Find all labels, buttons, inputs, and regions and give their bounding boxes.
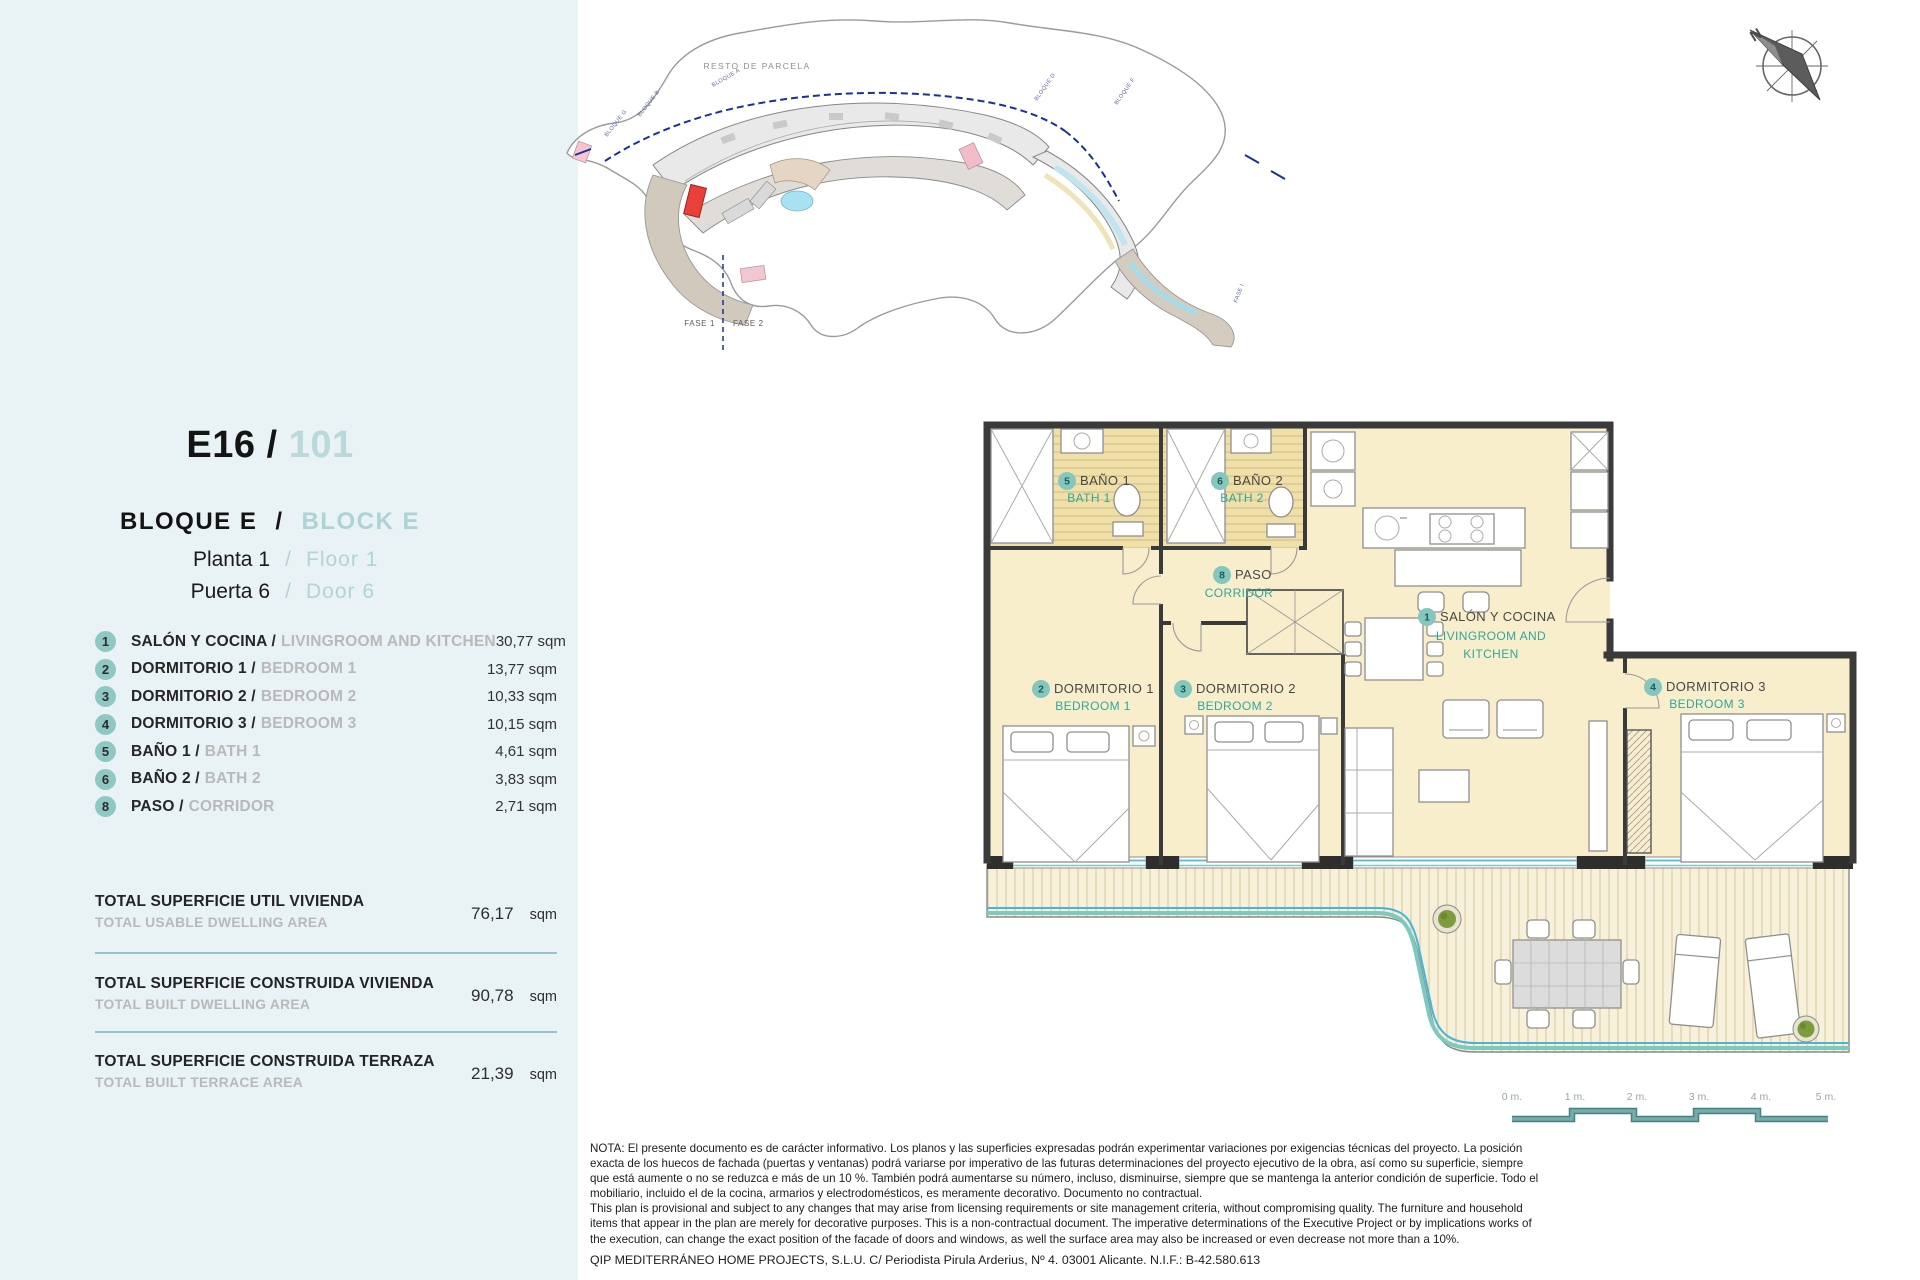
plant-icon: [1793, 1016, 1819, 1042]
unit-code: E16 /: [186, 424, 277, 466]
room-row-bath1: 5 BAÑO 1 /BATH 1 4,61 sqm: [95, 738, 557, 766]
room-name: DORMITORIO 3 /BEDROOM 3: [131, 715, 356, 733]
block-separator: /: [275, 508, 283, 535]
fase-1-label: FASE 1: [684, 319, 715, 328]
block-row: BLOQUE E/BLOCK E: [0, 508, 540, 536]
company-line: QIP MEDITERRÁNEO HOME PROJECTS, S.L.U. C…: [590, 1253, 1540, 1267]
unit-number: 101: [289, 424, 354, 466]
room-number-badge: 3: [95, 686, 116, 707]
svg-text:4: 4: [1650, 682, 1656, 694]
svg-text:DORMITORIO 2: DORMITORIO 2: [1196, 681, 1296, 696]
room-name: DORMITORIO 2 /BEDROOM 2: [131, 688, 356, 706]
floor-label-es: Planta 1: [0, 548, 270, 572]
room-area: 10,15 sqm: [487, 716, 557, 733]
room-area: 2,71 sqm: [495, 798, 557, 815]
scale-tick-5: 5 m.: [1816, 1091, 1836, 1103]
total-terrace-area: TOTAL SUPERFICIE CONSTRUIDA TERRAZA TOTA…: [95, 1053, 557, 1090]
svg-text:DORMITORIO 1: DORMITORIO 1: [1054, 681, 1154, 696]
scale-tick-2: 2 m.: [1627, 1091, 1647, 1103]
note-english: This plan is provisional and subject to …: [590, 1201, 1540, 1246]
room-row-corridor: 8 PASO /CORRIDOR 2,71 sqm: [95, 793, 557, 821]
total-value: 21,39sqm: [471, 1064, 557, 1084]
note-spanish: NOTA: El presente documento es de caráct…: [590, 1141, 1540, 1201]
scale-tick-3: 3 m.: [1689, 1091, 1709, 1103]
scale-bar: 0 m. 1 m. 2 m. 3 m. 4 m. 5 m.: [1498, 1086, 1843, 1130]
bedroom2-furniture: [1185, 716, 1337, 862]
svg-text:CORRIDOR: CORRIDOR: [1205, 586, 1274, 600]
door-row: Puerta 6 / Door 6: [0, 580, 540, 604]
site-plan: RESTO DE PARCELA: [545, 5, 1300, 350]
svg-text:PASO: PASO: [1235, 567, 1272, 582]
room-area-list: 1 SALÓN Y COCINA /LIVINGROOM AND KITCHEN…: [95, 628, 557, 821]
svg-text:1: 1: [1424, 612, 1430, 624]
room-row-bedroom2: 3 DORMITORIO 2 /BEDROOM 2 10,33 sqm: [95, 683, 557, 711]
resto-de-parcela-label: RESTO DE PARCELA: [703, 61, 810, 71]
room-name: DORMITORIO 1 /BEDROOM 1: [131, 660, 356, 678]
total-usable-area: TOTAL SUPERFICIE UTIL VIVIENDA TOTAL USA…: [95, 893, 557, 930]
scale-tick-0: 0 m.: [1502, 1091, 1522, 1103]
svg-text:BATH 2: BATH 2: [1220, 491, 1264, 505]
total-value: 76,17sqm: [471, 904, 557, 924]
room-area: 4,61 sqm: [495, 743, 557, 760]
door-label-es: Puerta 6: [0, 580, 270, 604]
floor-row: Planta 1 / Floor 1: [0, 548, 540, 572]
svg-text:BATH 1: BATH 1: [1067, 491, 1111, 505]
floor-separator: /: [270, 548, 306, 572]
door-label-en: Door 6: [306, 580, 476, 604]
svg-text:5: 5: [1064, 476, 1070, 488]
svg-text:KITCHEN: KITCHEN: [1463, 647, 1518, 661]
room-name: PASO /CORRIDOR: [131, 798, 275, 816]
svg-text:BEDROOM 3: BEDROOM 3: [1669, 697, 1745, 711]
room-area: 3,83 sqm: [495, 771, 557, 788]
total-value: 90,78sqm: [471, 986, 557, 1006]
room-number-badge: 4: [95, 714, 116, 735]
compass-icon: N: [1720, 12, 1840, 112]
room-row-bedroom1: 2 DORMITORIO 1 /BEDROOM 1 13,77 sqm: [95, 656, 557, 684]
svg-text:BAÑO 2: BAÑO 2: [1233, 473, 1283, 488]
total-built-area: TOTAL SUPERFICIE CONSTRUIDA VIVIENDA TOT…: [95, 975, 557, 1012]
svg-text:8: 8: [1219, 570, 1225, 582]
terrace: [987, 865, 1849, 1052]
block-label-en: BLOCK E: [302, 508, 421, 535]
unit-title: E16 / 101: [0, 424, 540, 467]
svg-text:3: 3: [1180, 684, 1186, 696]
fase-2-label: FASE 2: [733, 319, 764, 328]
room-number-badge: 2: [95, 659, 116, 680]
svg-text:SALÓN Y COCINA: SALÓN Y COCINA: [1440, 609, 1556, 624]
plan-sheet: E16 / 101 BLOQUE E/BLOCK E Planta 1 / Fl…: [0, 0, 1920, 1280]
info-panel: E16 / 101 BLOQUE E/BLOCK E Planta 1 / Fl…: [0, 0, 578, 1280]
fase-i-label: FASE I: [1233, 283, 1245, 304]
divider: [95, 1031, 557, 1033]
svg-text:BEDROOM 2: BEDROOM 2: [1197, 699, 1273, 713]
room-name: BAÑO 1 /BATH 1: [131, 743, 261, 761]
legal-note: NOTA: El presente documento es de caráct…: [590, 1141, 1540, 1267]
room-area: 13,77 sqm: [487, 661, 557, 678]
scale-tick-4: 4 m.: [1751, 1091, 1771, 1103]
bedroom3-furniture: [1681, 714, 1845, 862]
scale-tick-1: 1 m.: [1565, 1091, 1585, 1103]
door-separator: /: [270, 580, 306, 604]
block-label-es: BLOQUE E: [120, 508, 257, 535]
floor-label-en: Floor 1: [306, 548, 476, 572]
svg-text:BEDROOM 1: BEDROOM 1: [1055, 699, 1131, 713]
svg-text:2: 2: [1038, 684, 1044, 696]
svg-text:BAÑO 1: BAÑO 1: [1080, 473, 1130, 488]
room-row-bedroom3: 4 DORMITORIO 3 /BEDROOM 3 10,15 sqm: [95, 711, 557, 739]
room-area: 30,77 sqm: [496, 633, 566, 650]
plant-icon: [1433, 905, 1461, 933]
room-row-salon: 1 SALÓN Y COCINA /LIVINGROOM AND KITCHEN…: [95, 628, 557, 656]
room-area: 10,33 sqm: [487, 688, 557, 705]
room-name: SALÓN Y COCINA /LIVINGROOM AND KITCHEN: [131, 633, 496, 651]
divider: [95, 952, 557, 954]
floor-plan: 5 BAÑO 1 BATH 1 6 BAÑO 2 BATH 2 8 PASO C…: [975, 408, 1865, 1058]
svg-text:LIVINGROOM AND: LIVINGROOM AND: [1436, 629, 1546, 643]
room-number-badge: 8: [95, 796, 116, 817]
room-row-bath2: 6 BAÑO 2 /BATH 2 3,83 sqm: [95, 766, 557, 794]
room-number-badge: 6: [95, 769, 116, 790]
room-name: BAÑO 2 /BATH 2: [131, 770, 261, 788]
room-number-badge: 1: [95, 631, 116, 652]
svg-text:DORMITORIO 3: DORMITORIO 3: [1666, 679, 1766, 694]
svg-text:6: 6: [1217, 476, 1223, 488]
room-number-badge: 5: [95, 741, 116, 762]
